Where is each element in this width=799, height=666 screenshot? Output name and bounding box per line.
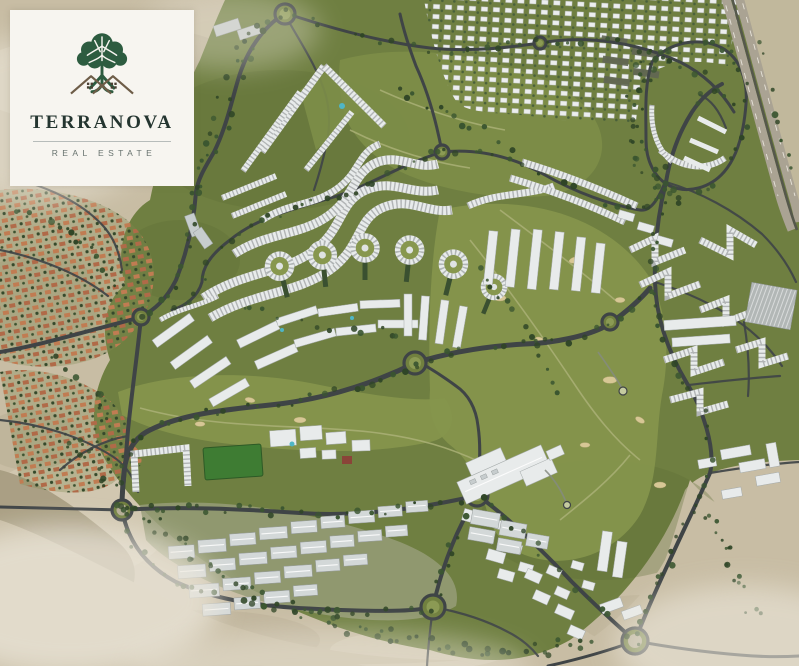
tree <box>200 159 204 163</box>
tree <box>501 343 507 349</box>
tree <box>159 420 164 425</box>
tree <box>662 187 667 192</box>
tree <box>465 46 469 50</box>
tree <box>336 515 340 519</box>
tree <box>393 333 398 338</box>
tree <box>728 545 732 549</box>
tree <box>442 148 445 151</box>
tree <box>149 503 154 508</box>
tree <box>228 97 232 101</box>
tree <box>53 354 58 359</box>
tree <box>299 510 303 514</box>
tree <box>427 51 430 54</box>
apartment-slab <box>404 294 412 336</box>
tree <box>413 160 416 163</box>
tree <box>631 124 636 129</box>
tree <box>256 405 259 408</box>
tree <box>710 457 716 463</box>
tree <box>346 511 349 514</box>
tree <box>604 611 610 617</box>
tree <box>676 200 682 206</box>
tree <box>737 581 741 585</box>
tree <box>447 564 451 568</box>
tree <box>428 504 434 510</box>
tree <box>648 595 653 600</box>
tree <box>131 438 136 443</box>
tree <box>395 504 400 509</box>
tree <box>259 217 265 223</box>
tree <box>736 67 741 72</box>
tree <box>193 222 198 227</box>
tree <box>384 170 390 176</box>
tree <box>639 90 642 93</box>
tree <box>656 313 663 320</box>
tree <box>633 164 636 167</box>
tree <box>73 240 78 245</box>
tree <box>241 75 246 80</box>
tree <box>570 183 577 190</box>
tree <box>209 562 213 566</box>
tree <box>87 450 91 454</box>
tree <box>724 562 730 568</box>
tree <box>260 307 265 312</box>
tree <box>630 117 635 122</box>
tree <box>663 180 669 186</box>
tree <box>654 304 657 307</box>
tree <box>546 41 549 44</box>
tree <box>113 284 116 287</box>
tree <box>411 42 416 47</box>
tree <box>537 172 540 175</box>
tree-over-houses-icon <box>56 26 148 110</box>
tree <box>360 33 365 38</box>
tree <box>725 547 728 550</box>
tree <box>496 296 499 299</box>
tree <box>669 562 676 569</box>
tree <box>739 135 745 141</box>
tree <box>195 504 199 508</box>
tree <box>146 310 153 317</box>
tree <box>546 368 549 371</box>
tree <box>533 642 537 646</box>
tree <box>481 494 488 501</box>
tree <box>133 506 138 511</box>
tree <box>174 286 178 290</box>
tree <box>566 41 569 44</box>
tree <box>495 45 501 51</box>
tree <box>203 140 210 147</box>
tree <box>325 195 331 201</box>
tree <box>664 201 667 204</box>
tree <box>223 74 229 80</box>
tree <box>378 378 383 383</box>
tree <box>383 607 388 612</box>
tree <box>745 124 751 130</box>
tree <box>354 33 357 36</box>
tree <box>696 101 701 106</box>
tree <box>206 154 209 157</box>
tree <box>68 229 74 235</box>
roundabout <box>602 314 618 330</box>
tree <box>720 48 725 53</box>
tree <box>648 259 654 265</box>
tree <box>216 413 219 416</box>
tree <box>419 610 424 615</box>
tree <box>536 354 540 358</box>
tree <box>524 649 529 654</box>
tree <box>227 126 232 131</box>
tree <box>152 530 156 534</box>
tree <box>402 368 409 375</box>
tree <box>638 72 642 76</box>
tree <box>308 392 312 396</box>
tree <box>186 239 189 242</box>
tree <box>485 44 491 50</box>
tree <box>142 517 145 520</box>
tree <box>435 149 441 155</box>
tree <box>428 149 434 155</box>
tree <box>652 56 658 62</box>
tree <box>667 191 673 197</box>
tree <box>496 140 500 144</box>
tree <box>189 245 192 248</box>
tree <box>208 131 213 136</box>
tree <box>197 166 200 169</box>
tree <box>641 108 644 111</box>
tree <box>359 625 362 628</box>
tree <box>536 540 541 545</box>
tree <box>557 567 562 572</box>
tree <box>248 504 252 508</box>
tree <box>588 597 592 601</box>
bunker <box>580 443 590 448</box>
tree <box>220 246 223 249</box>
tree <box>236 503 242 509</box>
tree <box>337 195 342 200</box>
tree <box>746 82 749 85</box>
tree <box>703 70 708 75</box>
tree <box>459 123 466 130</box>
tree <box>697 494 702 499</box>
tree <box>568 643 572 647</box>
tree <box>655 241 659 245</box>
tree <box>105 417 108 420</box>
tree <box>177 536 183 542</box>
tree <box>478 149 483 154</box>
tree <box>653 167 659 173</box>
tree <box>706 425 709 428</box>
tree <box>787 153 791 157</box>
tree <box>449 52 453 56</box>
tree <box>654 198 657 201</box>
tree <box>186 502 192 508</box>
tree <box>710 183 716 189</box>
tree <box>193 414 199 420</box>
tree <box>600 606 606 612</box>
tree <box>668 549 673 554</box>
tree <box>550 338 553 341</box>
tree <box>438 500 443 505</box>
tree <box>692 71 698 77</box>
tree <box>534 342 540 348</box>
tree <box>250 585 254 589</box>
tree <box>655 324 660 329</box>
tree <box>534 339 538 343</box>
school-building <box>300 425 323 441</box>
tree <box>298 398 302 402</box>
tree <box>358 330 364 336</box>
tree <box>301 203 304 206</box>
tree <box>543 337 548 342</box>
school-building <box>326 431 347 444</box>
tree <box>327 328 332 333</box>
tree <box>97 467 101 471</box>
tree <box>73 374 80 381</box>
tree <box>365 613 370 618</box>
tree <box>655 183 661 189</box>
tree <box>572 587 578 593</box>
tree <box>163 532 168 537</box>
tree <box>158 297 164 303</box>
red-roof-building <box>342 456 352 464</box>
tree <box>204 278 207 281</box>
tree <box>139 314 145 320</box>
tree <box>615 37 620 42</box>
golf-tee-circle <box>564 502 571 509</box>
tree <box>523 324 528 329</box>
tree <box>637 49 642 54</box>
tree <box>355 386 361 392</box>
school-building <box>300 447 317 458</box>
tree <box>509 306 515 312</box>
tree <box>522 339 526 343</box>
tree <box>119 480 125 486</box>
tree <box>191 292 196 297</box>
tree <box>175 273 180 278</box>
tree <box>354 508 361 515</box>
tree <box>315 512 322 519</box>
tree <box>652 173 657 178</box>
tree <box>675 373 681 379</box>
tree <box>369 382 376 389</box>
tree <box>703 516 707 520</box>
tree <box>413 501 416 504</box>
tree <box>730 50 734 54</box>
tree <box>58 225 62 229</box>
tree <box>732 62 735 65</box>
tree <box>190 191 195 196</box>
tree <box>674 535 678 539</box>
developer-logo-card: TERRANOVA REAL ESTATE <box>10 10 194 186</box>
tree <box>291 404 294 407</box>
tree <box>404 95 410 101</box>
tree <box>660 337 666 343</box>
logo-divider <box>33 141 171 142</box>
tree <box>679 40 682 43</box>
tree <box>94 254 99 259</box>
tree <box>704 408 708 412</box>
tree <box>260 507 265 512</box>
tree <box>350 612 355 617</box>
tree <box>422 157 427 162</box>
tree <box>660 572 664 576</box>
tree <box>27 210 32 215</box>
tree <box>388 626 394 632</box>
tree <box>634 156 640 162</box>
tree <box>510 147 516 153</box>
tree <box>605 36 610 41</box>
tree <box>501 515 507 521</box>
tree <box>561 179 568 186</box>
tree <box>195 189 202 196</box>
tree <box>678 66 682 70</box>
tree <box>183 536 189 542</box>
bunker <box>615 297 625 302</box>
tree <box>276 317 279 320</box>
tree <box>271 607 277 613</box>
tree <box>636 125 639 128</box>
tree <box>299 616 302 619</box>
tree <box>211 116 216 121</box>
tree <box>189 204 195 210</box>
bunker <box>294 417 306 423</box>
tree <box>445 110 448 113</box>
tree <box>222 575 225 578</box>
tree <box>237 232 241 236</box>
tree <box>268 512 274 518</box>
tree <box>676 195 682 201</box>
tree <box>545 652 551 658</box>
tree <box>775 120 780 125</box>
tree <box>656 574 661 579</box>
tree <box>78 437 83 442</box>
tree <box>633 62 639 68</box>
tree <box>98 403 102 407</box>
tree <box>696 189 703 196</box>
tree <box>772 111 779 118</box>
tree <box>185 232 190 237</box>
tree <box>325 606 332 613</box>
tree <box>743 99 747 103</box>
tree <box>757 40 761 44</box>
school-building <box>352 440 370 452</box>
tree <box>124 512 129 517</box>
tree <box>229 238 235 244</box>
tree <box>729 156 733 160</box>
tree <box>291 600 296 605</box>
tree <box>161 509 165 513</box>
tree <box>487 285 492 290</box>
tree <box>241 597 248 604</box>
tree <box>115 484 118 487</box>
tree <box>318 609 323 614</box>
tree <box>642 78 647 83</box>
tree <box>14 209 19 214</box>
tree <box>183 303 186 306</box>
tree <box>171 305 177 311</box>
tree <box>582 335 588 341</box>
tree <box>429 358 434 363</box>
tree <box>365 182 370 187</box>
tree <box>409 606 413 610</box>
tree <box>384 513 387 516</box>
tree <box>651 232 655 236</box>
sports-field <box>203 444 263 480</box>
tree <box>119 464 124 469</box>
tree <box>201 276 204 279</box>
tree <box>632 103 636 107</box>
tree <box>661 56 665 60</box>
tree <box>261 603 268 610</box>
swimming-pool <box>290 442 295 447</box>
tree <box>625 95 628 98</box>
tree <box>369 511 374 516</box>
swimming-pool <box>350 316 354 320</box>
tree <box>178 264 184 270</box>
tree <box>578 645 584 651</box>
tree <box>398 87 402 91</box>
tree <box>665 48 672 55</box>
tree <box>467 126 472 131</box>
tree <box>486 279 489 282</box>
tree <box>520 162 525 167</box>
tree <box>184 542 187 545</box>
tree <box>651 247 655 251</box>
tree <box>505 298 511 304</box>
bunker <box>654 482 666 488</box>
tree <box>224 511 227 514</box>
tree <box>413 361 418 366</box>
tree <box>707 514 711 518</box>
tree <box>589 640 593 644</box>
tree <box>555 637 560 642</box>
golf-tee-circle <box>619 387 627 395</box>
tree <box>493 346 497 350</box>
tree <box>90 246 93 249</box>
tree <box>438 569 444 575</box>
parking-lot <box>745 282 797 329</box>
tree <box>703 40 709 46</box>
tree <box>451 113 456 118</box>
tree <box>246 403 250 407</box>
tree <box>102 484 105 487</box>
tree <box>649 63 652 66</box>
tree <box>685 386 690 391</box>
tree <box>658 193 664 199</box>
tree <box>309 199 312 202</box>
school-building <box>322 450 336 459</box>
tree <box>706 188 710 192</box>
tree <box>555 390 560 395</box>
tree <box>640 140 644 144</box>
tree <box>694 504 697 507</box>
tree <box>448 353 453 358</box>
tree <box>100 267 106 273</box>
tree <box>155 507 160 512</box>
tree <box>249 223 253 227</box>
tree <box>315 325 320 330</box>
brand-tagline: REAL ESTATE <box>52 148 156 158</box>
tree <box>203 260 209 266</box>
apartment-slab <box>360 299 400 308</box>
tree <box>178 418 182 422</box>
tree <box>300 319 303 322</box>
tree <box>147 520 151 524</box>
tree <box>631 140 635 144</box>
tree <box>463 513 470 520</box>
tree <box>449 551 454 556</box>
tree <box>251 596 256 601</box>
